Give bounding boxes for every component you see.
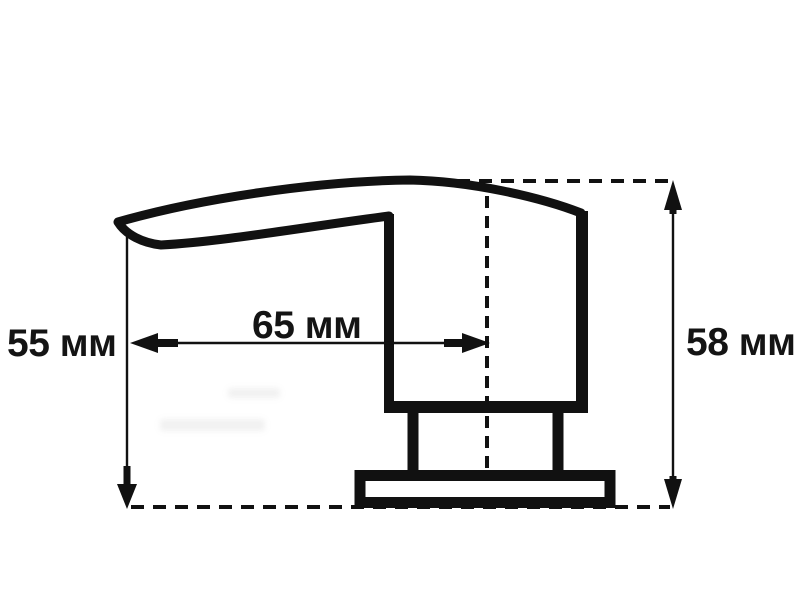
technical-drawing-canvas: 55 мм 65 мм 58 мм (0, 0, 800, 600)
dimension-label-horizontal-reach: 65 мм (252, 306, 361, 345)
dispenser-line-drawing (0, 0, 800, 600)
flange-base-outline (360, 476, 610, 503)
dimension-label-left-height: 55 мм (7, 324, 116, 363)
spout-outline (118, 180, 581, 245)
dim-58-arrowhead-down (664, 479, 682, 509)
dimension-label-right-height: 58 мм (686, 323, 795, 362)
dim-58-arrowhead-up (664, 180, 682, 210)
dim-65-arrowhead-left (130, 333, 158, 353)
